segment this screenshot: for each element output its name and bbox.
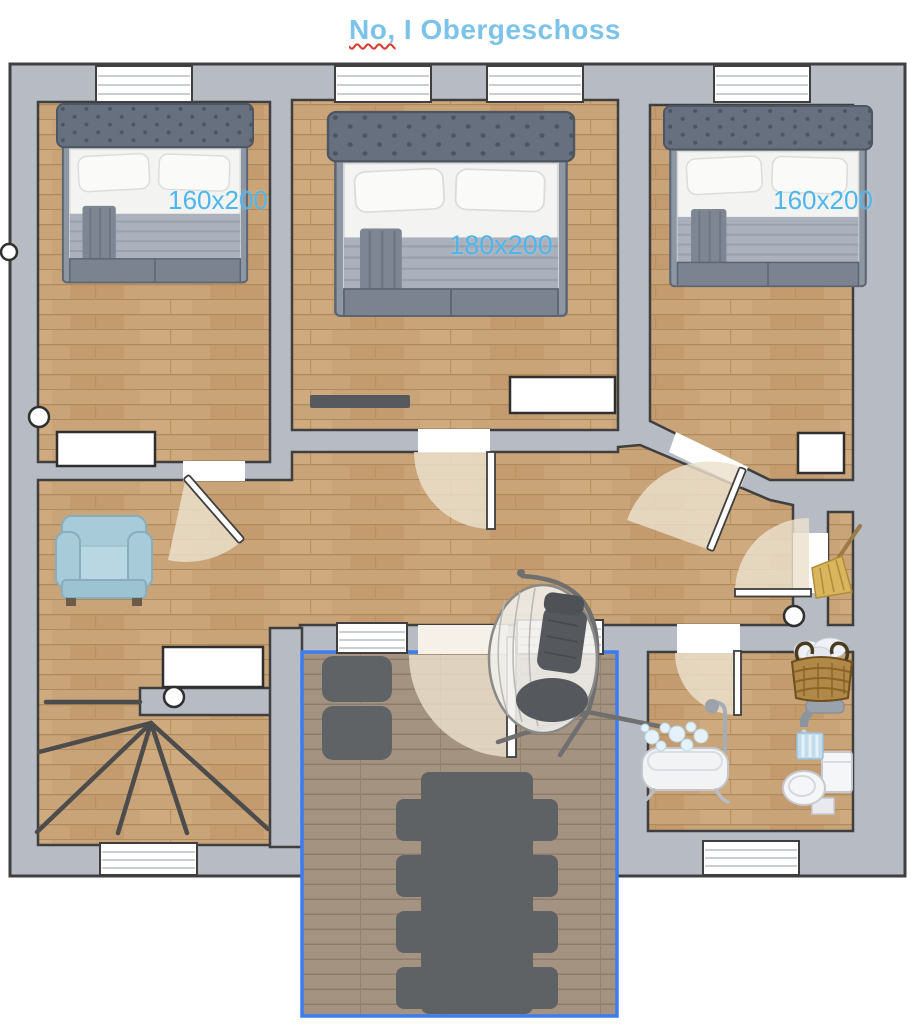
window [335,66,431,102]
bed-size-label-left: 160x200 [163,185,273,216]
window [100,843,197,875]
laundry-basket [792,638,852,701]
armchair [56,516,152,606]
radiator [510,377,615,413]
water-glass [797,733,823,759]
wall-marker [164,687,184,707]
radiator [57,432,155,466]
radiator [163,647,263,687]
window [703,841,799,875]
wall-shelf [310,395,410,408]
bed-size-label-right: 160x200 [768,185,878,216]
floor-plan-svg [0,0,914,1024]
dining-table [421,772,533,1014]
window [487,66,583,102]
wall-marker [1,244,17,260]
window [337,623,407,653]
dining-table-set [396,772,558,1014]
page-title: No, I Obergeschoss [0,14,914,46]
radiator [798,433,844,473]
balcony-left-wall [270,628,302,847]
wall-marker [29,407,49,427]
bed-middle [328,112,574,316]
window [96,66,192,102]
title-rest: I Obergeschoss [396,14,621,45]
title-prefix: No, [349,14,396,45]
stairs-room-wall [140,688,272,715]
window [714,66,810,102]
wall-marker [784,606,804,626]
floor-plan-page: No, I Obergeschoss 160x200 180x200 160x2… [0,0,914,1024]
lounger [322,656,392,760]
bed-size-label-middle: 180x200 [441,230,561,261]
